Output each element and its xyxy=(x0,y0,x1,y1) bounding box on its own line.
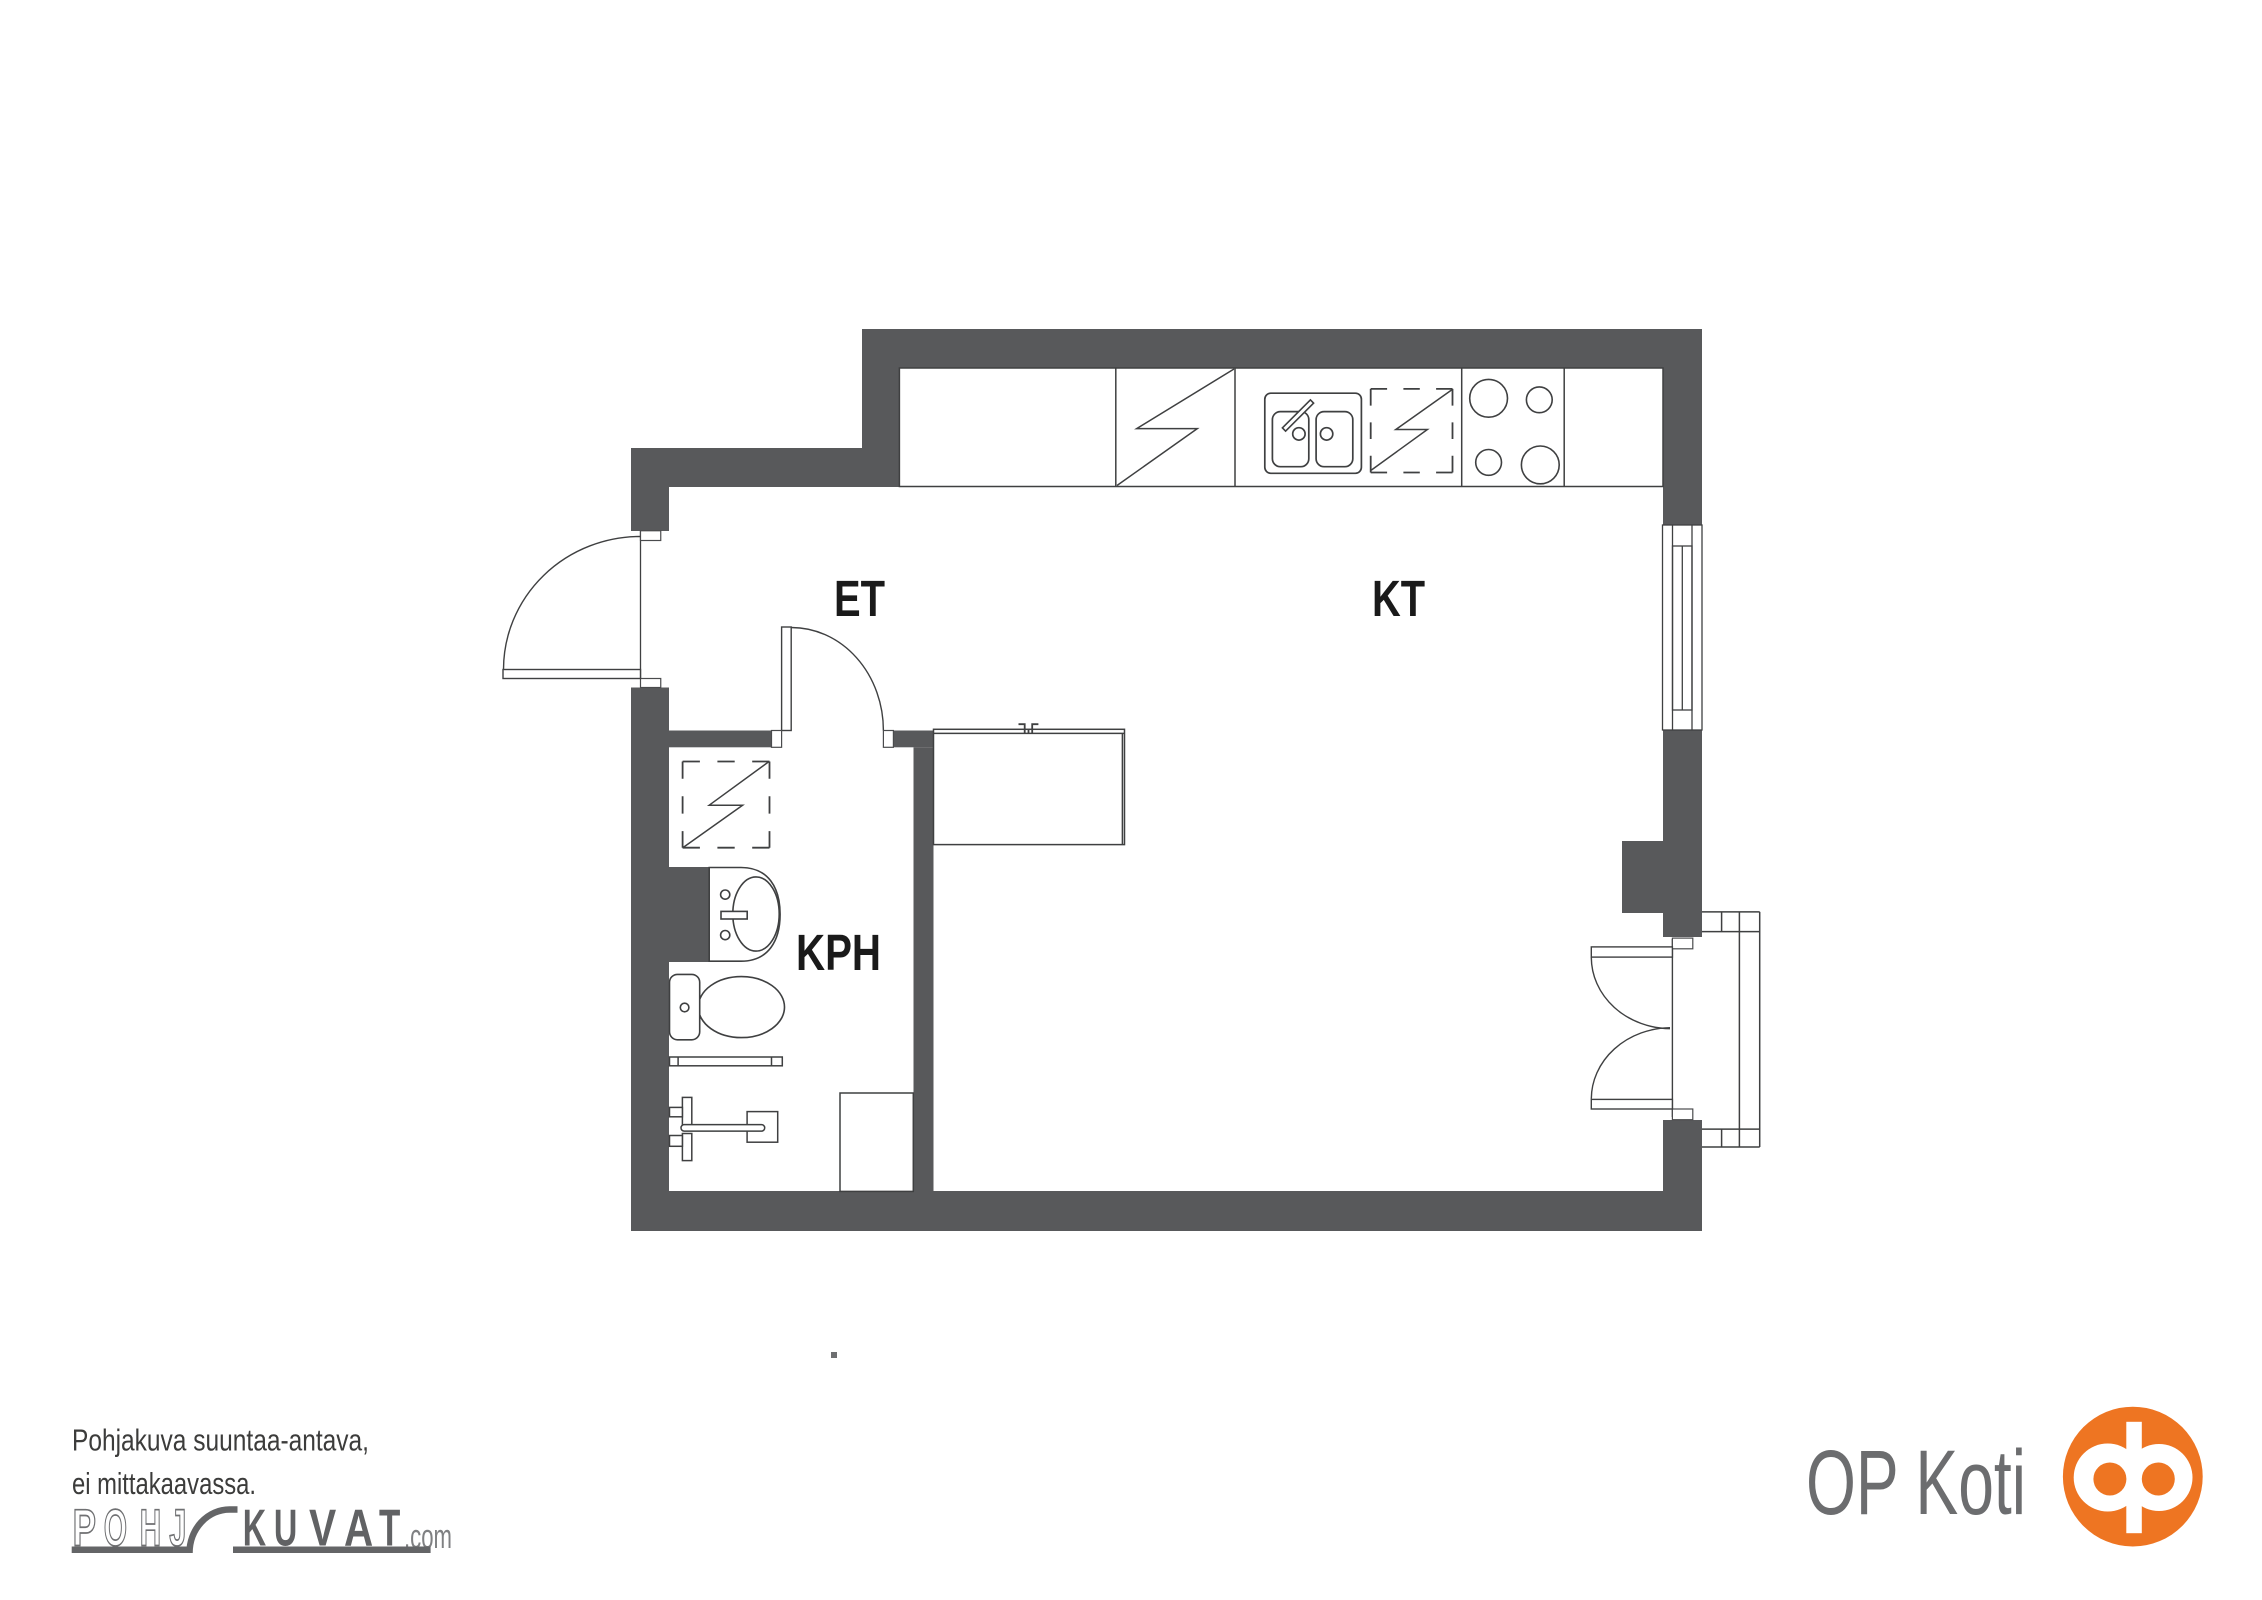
svg-text:ei mittakaavassa.: ei mittakaavassa. xyxy=(72,1466,256,1501)
svg-text:Pohjakuva suuntaa-antava,: Pohjakuva suuntaa-antava, xyxy=(72,1423,369,1458)
svg-text:KT: KT xyxy=(1372,570,1425,627)
svg-text:KPH: KPH xyxy=(796,924,881,981)
svg-text:ET: ET xyxy=(834,570,885,627)
svg-text:OP Koti: OP Koti xyxy=(1806,1432,2026,1534)
